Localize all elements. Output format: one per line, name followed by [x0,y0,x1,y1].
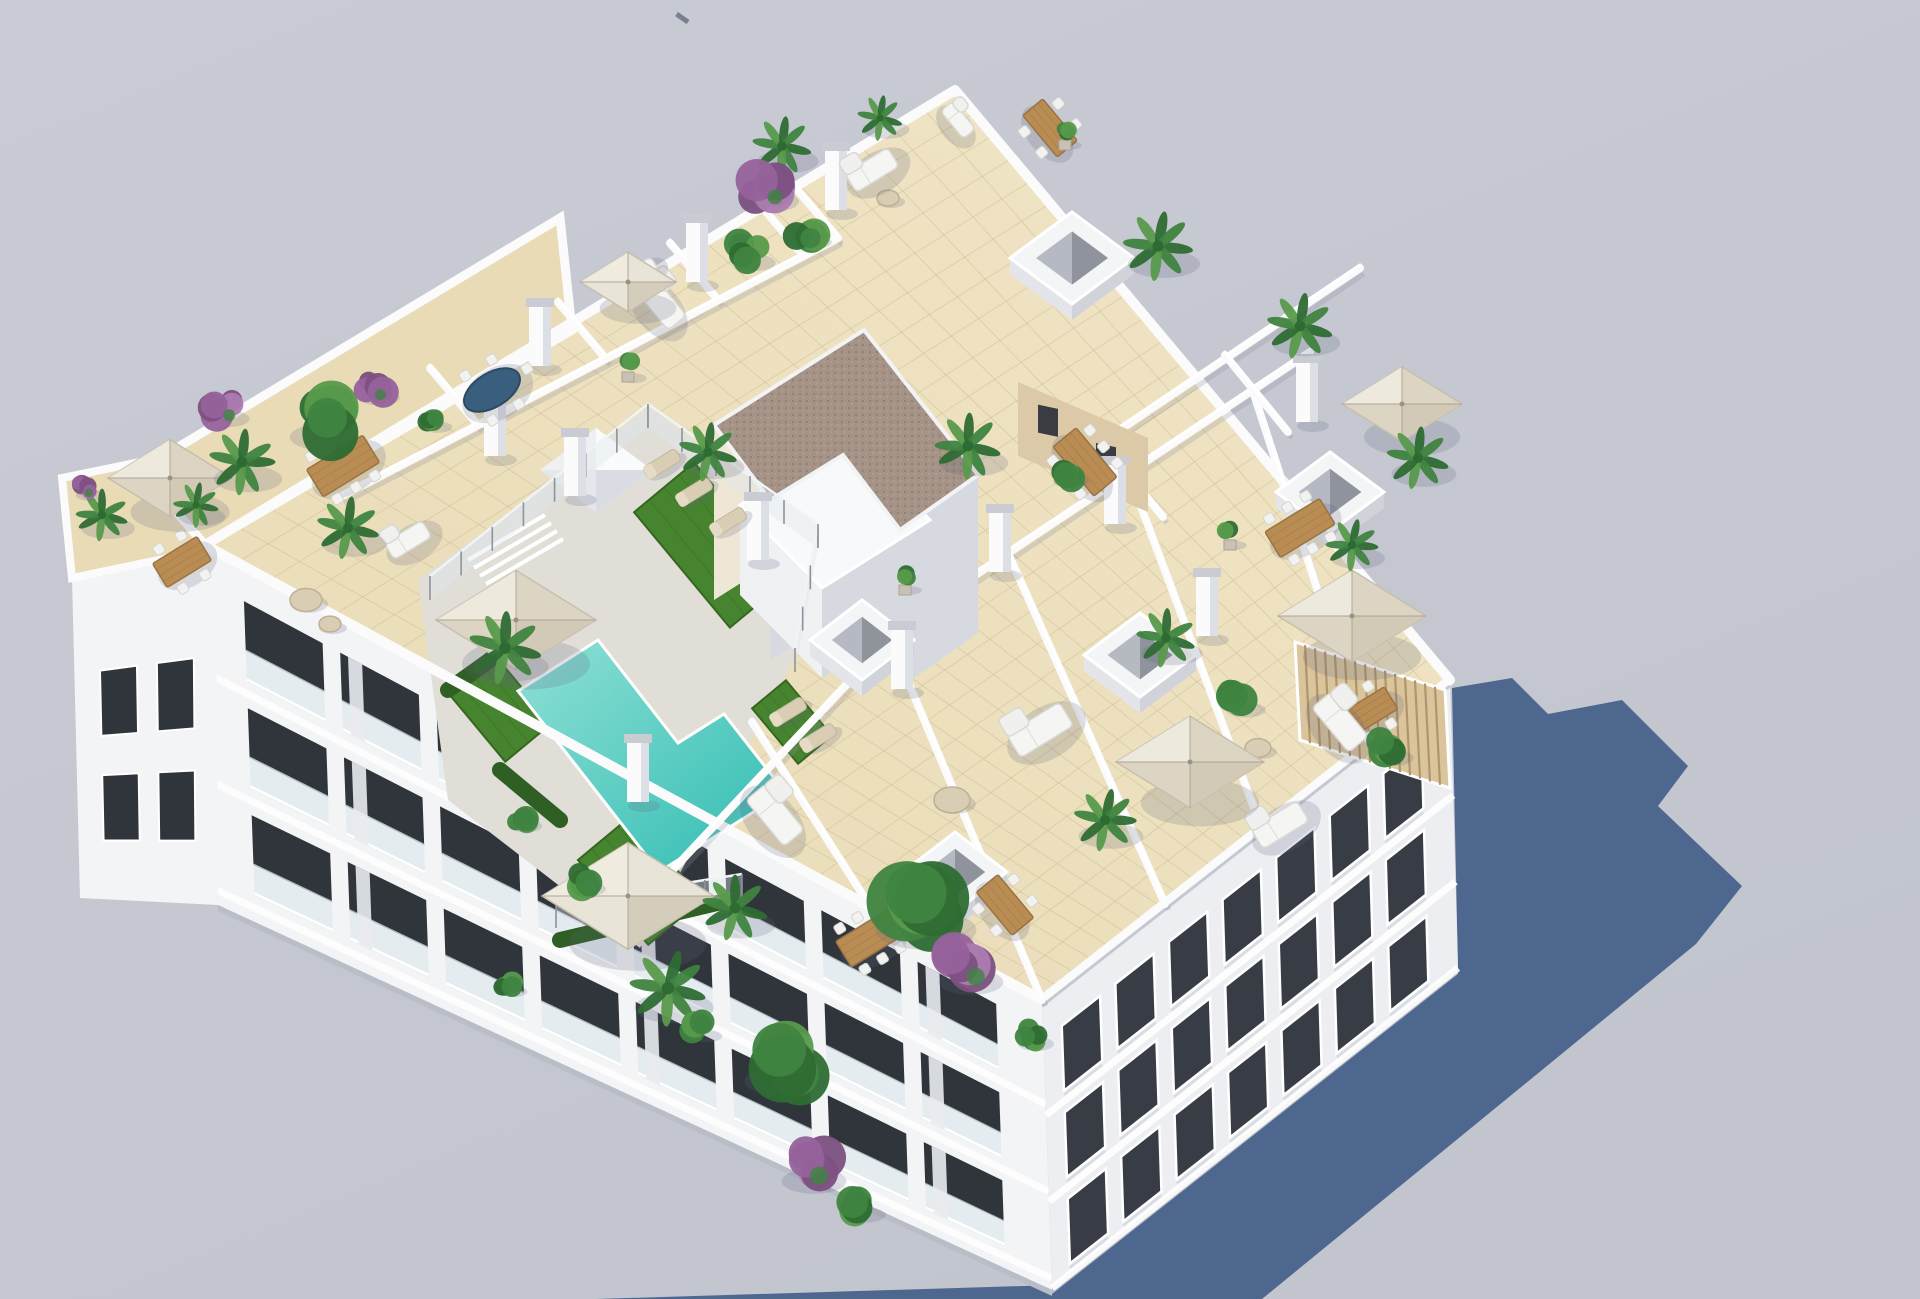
plant-purple [782,1136,847,1194]
rooftop-render-canvas [0,0,1920,1299]
architectural-render-stage [0,0,1920,1299]
stair-core-window [1038,405,1058,437]
